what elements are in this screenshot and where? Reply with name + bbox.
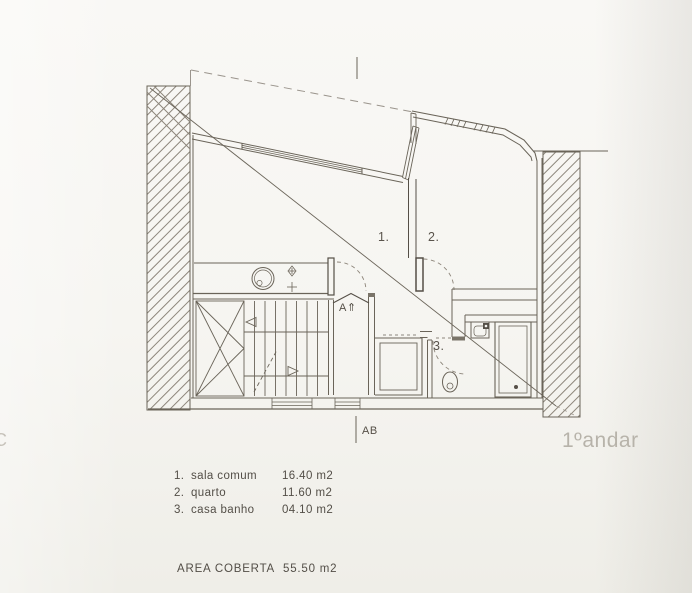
room2-top-wall (412, 111, 537, 161)
angled-window (403, 113, 420, 180)
shower (495, 322, 531, 397)
hall-west-wall (329, 300, 334, 395)
edge-section-letter: C (0, 430, 7, 451)
room3-number: 3. (433, 339, 444, 353)
closet (375, 335, 422, 395)
washbasin (471, 322, 489, 338)
stove-burners (287, 266, 297, 292)
legend-row1-name: sala comum (191, 470, 282, 487)
legend-row3-name: casa banho (191, 504, 282, 521)
bottom-window-2 (335, 398, 360, 409)
floor-plan-drawing: AB A⇑ 1. 2. 3. (0, 0, 692, 593)
covered-area-total: AREA COBERTA 55.50 m2 (177, 563, 337, 575)
room1-door-swing (337, 262, 366, 291)
covered-area-label: AREA COBERTA (177, 563, 283, 575)
kitchen-sink (252, 268, 274, 290)
room2-door-swing (424, 259, 455, 290)
right-interior-wall (537, 158, 542, 398)
room2-number: 2. (428, 230, 439, 244)
scanned-floor-plan-page: AB A⇑ 1. 2. 3. 1. sala comum 16.40 m2 2.… (0, 0, 692, 593)
area-legend: 1. sala comum 16.40 m2 2. quarto 11.60 m… (174, 470, 333, 521)
legend-row3-area: 04.10 m2 (282, 504, 333, 521)
bottom-exterior-wall (148, 398, 543, 409)
legend-row2-name: quarto (191, 487, 282, 504)
floor-title: 1ºandar (562, 429, 639, 453)
section-label-ab: AB (362, 425, 378, 437)
legend-row2-area: 11.60 m2 (282, 487, 333, 504)
toilet (443, 372, 458, 392)
room1-number: 1. (378, 230, 389, 244)
section-arrow-label: A⇑ (339, 302, 357, 314)
section-arrow-mark: A⇑ (333, 294, 369, 315)
shower-drain (514, 385, 518, 389)
stair-treads (244, 301, 329, 396)
legend-row1-number: 1. (174, 470, 191, 487)
room2-bottom-wall (452, 289, 537, 300)
bottom-window-1 (272, 398, 312, 409)
room-divider-wall (409, 178, 424, 291)
closet-west-wall (368, 293, 375, 395)
bathroom-entry-wall (452, 300, 465, 341)
kitchen-counter (193, 263, 334, 299)
room1-door-jamb (328, 258, 334, 295)
legend-row1-area: 16.40 m2 (282, 470, 333, 487)
bathroom-top-wall (465, 315, 537, 322)
diagonal-reference-line (150, 88, 556, 406)
legend-row3-number: 3. (174, 504, 191, 521)
covered-area-value: 55.50 m2 (283, 563, 337, 575)
left-party-wall (147, 86, 190, 410)
roof-overhang-dashed (191, 70, 413, 112)
room1-top-wall (192, 133, 403, 183)
staircase (196, 301, 329, 396)
legend-row2-number: 2. (174, 487, 191, 504)
stair-walk-line (254, 350, 277, 392)
room2-door-jamb (416, 258, 423, 291)
sink-drain (257, 280, 262, 285)
right-party-wall (533, 151, 608, 417)
